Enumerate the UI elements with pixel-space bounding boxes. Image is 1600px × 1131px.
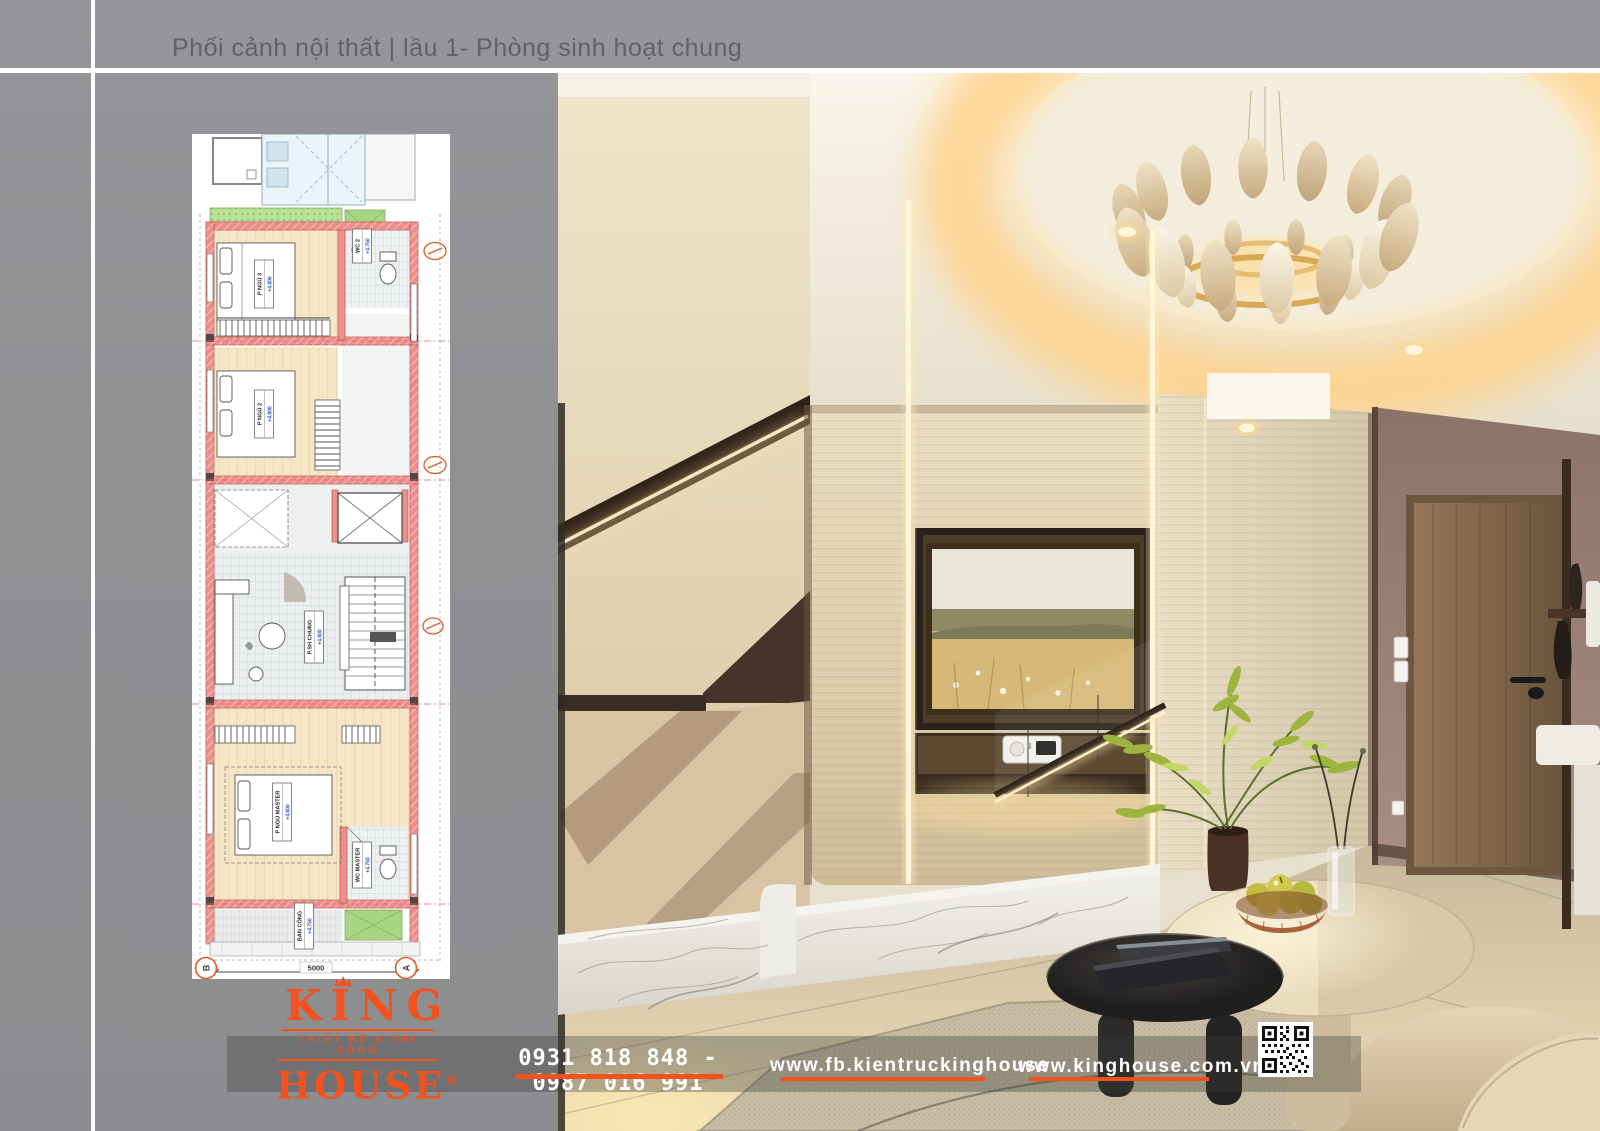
interior-render-image: [558, 73, 1600, 1131]
grid-bubble-a: A: [396, 958, 417, 979]
logo-brand: KING: [276, 984, 440, 1028]
crown-icon: [333, 975, 353, 987]
website-link: www.kinghouse.com.vn: [1018, 1056, 1214, 1078]
room-label-bancong: BAN CÔNG +4.750: [295, 903, 314, 949]
svg-text:WC MASTER: WC MASTER: [356, 848, 362, 883]
svg-text:+4.800: +4.800: [268, 406, 274, 422]
svg-text:P NGỦ 3: P NGỦ 3: [257, 273, 264, 295]
page-title: Phối cảnh nội thất | lầu 1- Phòng sinh h…: [172, 34, 742, 63]
console: [1536, 725, 1600, 765]
door-handle: [1510, 677, 1546, 683]
facebook-link: www.fb.kientruckinghouse: [770, 1055, 990, 1077]
room-label-pngu3: P NGỦ 3 +4.800: [255, 260, 274, 308]
svg-text:WC 2: WC 2: [356, 239, 362, 253]
svg-text:+4.800: +4.800: [318, 629, 324, 645]
floor-plan-drawing: P NGỦ 3 +4.800 WC 2 +4.750 P NGỦ 2 +4.80…: [192, 134, 450, 979]
room-label-pngu2: P NGỦ 2 +4.800: [255, 390, 274, 438]
svg-text:P NGỦ 2: P NGỦ 2: [257, 403, 264, 425]
svg-text:P.SH CHUNG: P.SH CHUNG: [308, 620, 314, 654]
svg-text:+4.800: +4.800: [268, 276, 274, 292]
room-label-wcmaster: WC MASTER +4.750: [353, 842, 372, 888]
svg-text:+4.750: +4.750: [366, 857, 372, 873]
presentation-board: Phối cảnh nội thất | lầu 1- Phòng sinh h…: [0, 0, 1600, 1131]
qr-code-icon: [1258, 1022, 1313, 1077]
logo-brand2: HOUSE®: [276, 1062, 440, 1105]
hanging-cloth: [1586, 581, 1600, 647]
room-label-pshchung: P.SH CHUNG +4.800: [305, 611, 324, 663]
svg-text:B: B: [202, 964, 212, 971]
wood-door: [1406, 495, 1568, 875]
grid-bubble-b: B: [196, 958, 217, 979]
phone-numbers: 0931 818 848 - 0987 016 991: [492, 1046, 744, 1096]
room-label-master: P NGỦ MASTER +4.800: [273, 783, 292, 841]
svg-text:+4.750: +4.750: [308, 918, 314, 934]
website-underline: [1029, 1077, 1209, 1081]
svg-text:P NGỦ MASTER: P NGỦ MASTER: [275, 791, 282, 834]
room-label-wc2: WC 2 +4.750: [353, 229, 372, 263]
svg-text:+4.800: +4.800: [286, 804, 292, 820]
king-house-logo: KING THIẾT KẾ & THI CÔNG HOUSE®: [276, 984, 440, 1105]
svg-text:A: A: [402, 964, 412, 971]
vertical-divider: [91, 0, 95, 1131]
phone-underline: [515, 1074, 723, 1079]
facebook-underline: [781, 1077, 985, 1081]
dimension-line: 5000: [213, 962, 419, 975]
registered-mark: ®: [445, 1074, 458, 1089]
entry-wall: [1372, 407, 1600, 929]
floor-plan: P NGỦ 3 +4.800 WC 2 +4.750 P NGỦ 2 +4.80…: [192, 134, 450, 979]
logo-rule-bottom: [278, 1059, 438, 1061]
horizontal-divider: [0, 68, 1600, 73]
logo-tagline: THIẾT KẾ & THI CÔNG: [276, 1034, 440, 1056]
svg-text:BAN CÔNG: BAN CÔNG: [296, 911, 304, 941]
render-scene: [558, 73, 1600, 1131]
hallway-wall: [1158, 393, 1378, 875]
svg-text:5000: 5000: [308, 964, 325, 973]
svg-text:+4.750: +4.750: [366, 238, 372, 254]
